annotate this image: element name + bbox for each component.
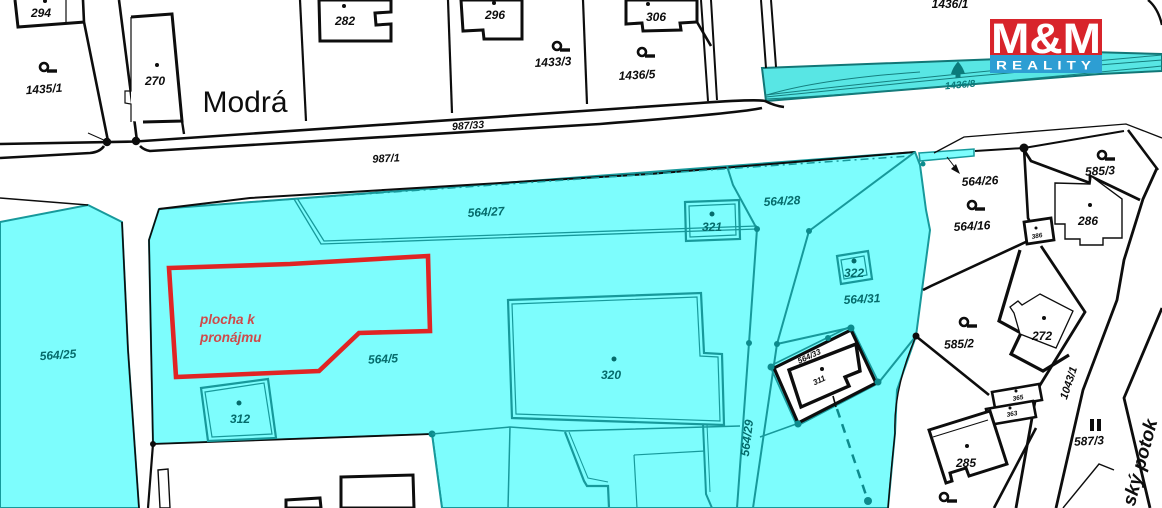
svg-text:282: 282 xyxy=(334,14,355,28)
svg-text:585/3: 585/3 xyxy=(1085,163,1116,179)
svg-text:1436/5: 1436/5 xyxy=(618,67,656,83)
svg-text:987/33: 987/33 xyxy=(452,119,485,133)
svg-text:320: 320 xyxy=(601,368,621,382)
svg-text:564/16: 564/16 xyxy=(953,218,991,234)
svg-text:322: 322 xyxy=(844,266,864,280)
svg-text:1436/1: 1436/1 xyxy=(932,0,969,11)
svg-text:564/25: 564/25 xyxy=(39,347,77,364)
svg-text:296: 296 xyxy=(484,8,505,22)
svg-text:Modrá: Modrá xyxy=(202,86,287,119)
svg-text:285: 285 xyxy=(955,456,976,470)
svg-text:587/3: 587/3 xyxy=(1074,433,1105,449)
svg-text:REALITY: REALITY xyxy=(996,59,1096,73)
svg-text:1433/3: 1433/3 xyxy=(534,54,572,70)
svg-text:585/2: 585/2 xyxy=(944,336,975,352)
svg-text:564/28: 564/28 xyxy=(763,193,801,209)
svg-text:294: 294 xyxy=(30,6,51,20)
svg-text:321: 321 xyxy=(702,220,722,234)
svg-text:272: 272 xyxy=(1031,329,1052,343)
svg-text:312: 312 xyxy=(230,412,250,426)
svg-text:286: 286 xyxy=(1077,214,1098,228)
svg-text:270: 270 xyxy=(144,74,165,88)
svg-text:1435/1: 1435/1 xyxy=(25,81,63,98)
svg-text:987/1: 987/1 xyxy=(372,152,400,165)
svg-text:564/27: 564/27 xyxy=(467,204,506,220)
svg-text:306: 306 xyxy=(646,10,666,24)
svg-text:564/5: 564/5 xyxy=(368,351,399,367)
svg-text:pronájmu: pronájmu xyxy=(199,330,262,345)
svg-text:564/31: 564/31 xyxy=(843,291,881,307)
svg-text:plocha k: plocha k xyxy=(199,312,256,327)
svg-text:564/26: 564/26 xyxy=(961,173,999,189)
